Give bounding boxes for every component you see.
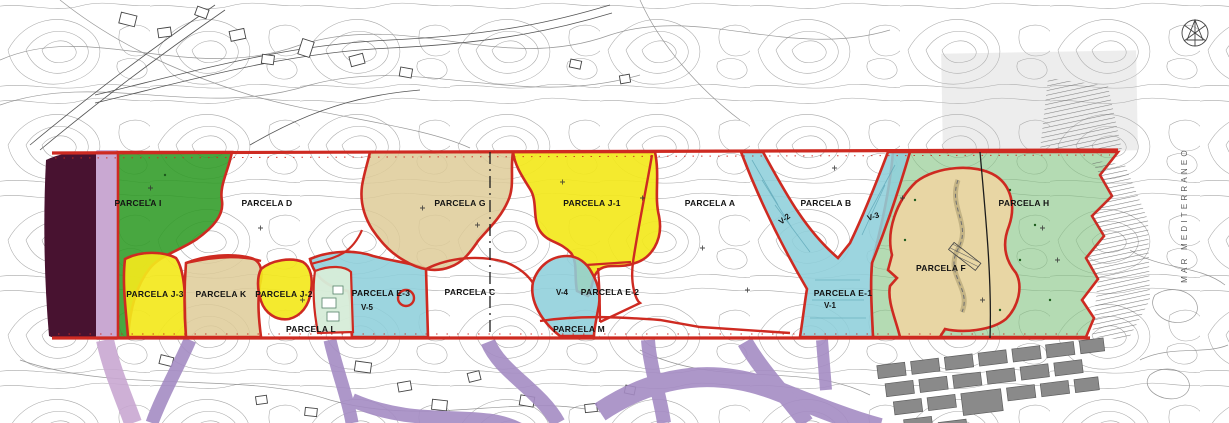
label-parcela-i: PARCELA I <box>114 198 161 208</box>
label-parcela-m: PARCELA M <box>553 324 605 334</box>
label-v1: V-1 <box>824 301 837 310</box>
label-parcela-l: PARCELA L <box>286 324 336 334</box>
violet-road-band <box>96 151 118 339</box>
label-parcela-k: PARCELA K <box>196 289 248 299</box>
label-v5: V-5 <box>361 303 374 312</box>
label-parcela-c: PARCELA C <box>445 287 496 297</box>
label-parcela-f: PARCELA F <box>916 263 966 273</box>
label-parcela-b: PARCELA B <box>801 198 852 208</box>
label-parcela-g: PARCELA G <box>434 198 486 208</box>
parcel-maroon-band <box>44 152 96 340</box>
map-canvas: PARCELA I PARCELA D PARCELA G PARCELA J-… <box>0 0 1229 423</box>
label-parcela-a: PARCELA A <box>685 198 736 208</box>
label-parcela-e2: PARCELA E-2 <box>581 287 640 297</box>
label-parcela-d: PARCELA D <box>242 198 293 208</box>
site-plan-map: PARCELA I PARCELA D PARCELA G PARCELA J-… <box>0 0 1229 423</box>
label-mar-mediterraneo: MAR MEDITERRANEO <box>1180 147 1189 283</box>
label-parcela-j2: PARCELA J-2 <box>255 289 313 299</box>
label-parcela-e3: PARCELA E-3 <box>352 288 411 298</box>
label-parcela-j3: PARCELA J-3 <box>126 289 184 299</box>
label-parcela-h: PARCELA H <box>999 198 1050 208</box>
label-parcela-j1: PARCELA J-1 <box>563 198 621 208</box>
label-v4: V-4 <box>556 288 569 297</box>
label-parcela-e1: PARCELA E-1 <box>814 288 873 298</box>
